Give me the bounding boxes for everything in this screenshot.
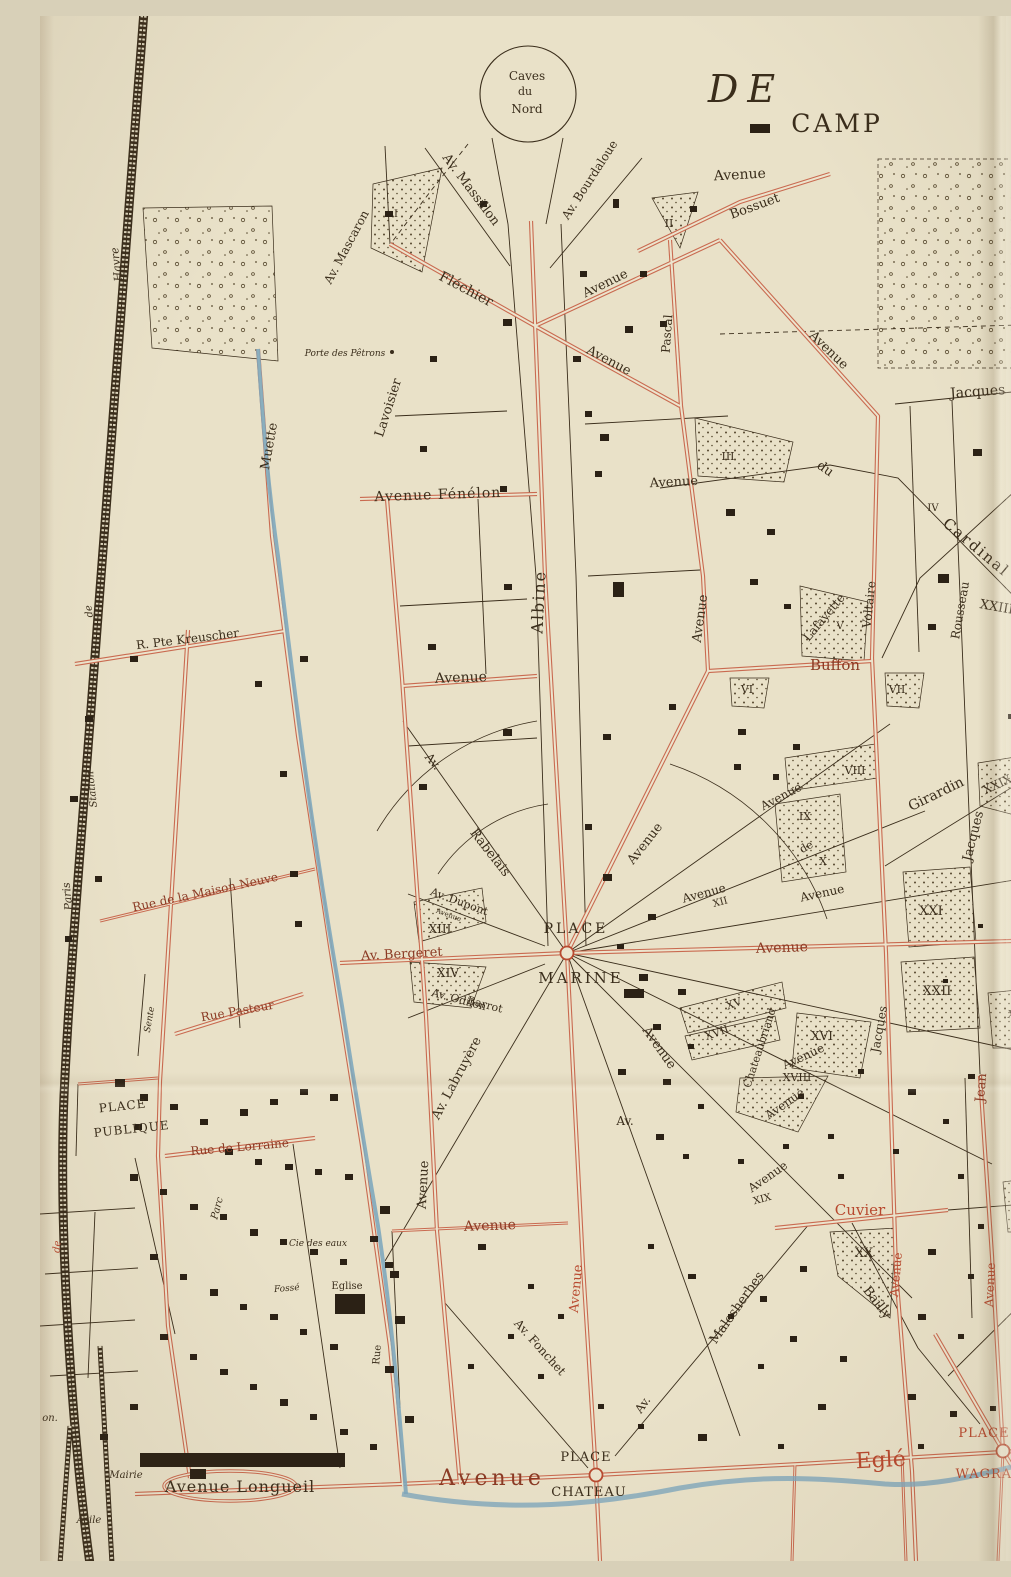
map-label: XVI bbox=[811, 1029, 833, 1043]
wooded-area bbox=[792, 1013, 871, 1078]
building bbox=[818, 1404, 826, 1410]
map-label: XVIII bbox=[783, 1071, 812, 1084]
building bbox=[478, 1244, 486, 1250]
map-label: DE bbox=[707, 67, 784, 111]
map-label: Avenue bbox=[438, 1466, 545, 1491]
building bbox=[420, 446, 427, 452]
building bbox=[918, 1314, 926, 1320]
building bbox=[838, 1174, 844, 1179]
building bbox=[698, 1434, 707, 1441]
building bbox=[648, 1244, 654, 1249]
building bbox=[170, 1104, 178, 1110]
building bbox=[783, 1144, 789, 1149]
building bbox=[738, 1159, 744, 1164]
map-label: Eglise bbox=[331, 1281, 362, 1292]
map-label: I bbox=[394, 209, 398, 220]
building bbox=[300, 1329, 307, 1335]
building bbox=[600, 434, 609, 441]
map-label: Mairie bbox=[108, 1470, 142, 1481]
building bbox=[370, 1444, 377, 1450]
building bbox=[598, 1404, 604, 1409]
building bbox=[508, 1334, 514, 1339]
map-label: Avenue bbox=[648, 474, 698, 492]
map-label: Cie des eaux bbox=[289, 1239, 347, 1249]
building bbox=[150, 1254, 158, 1260]
building bbox=[595, 471, 602, 477]
building bbox=[918, 1444, 924, 1449]
building bbox=[990, 1406, 996, 1411]
map-label: Rue bbox=[371, 1344, 384, 1365]
building bbox=[639, 974, 648, 981]
building bbox=[100, 1434, 108, 1440]
building bbox=[345, 1174, 353, 1180]
building bbox=[395, 1316, 405, 1324]
building bbox=[758, 1364, 764, 1369]
building bbox=[908, 1394, 916, 1400]
building bbox=[330, 1094, 338, 1101]
building bbox=[613, 582, 624, 597]
building bbox=[370, 1236, 378, 1242]
place-wagram bbox=[997, 1445, 1010, 1458]
building bbox=[760, 1296, 767, 1302]
building bbox=[385, 1366, 394, 1373]
building bbox=[688, 1044, 694, 1049]
building bbox=[943, 1119, 949, 1124]
building bbox=[858, 1069, 864, 1074]
map-label: Nord bbox=[511, 102, 542, 116]
map-label: Avenue Longueil bbox=[164, 1477, 315, 1496]
building bbox=[573, 356, 581, 362]
building bbox=[656, 1134, 664, 1140]
building bbox=[828, 1134, 834, 1139]
map-label: Porte des Pêtrons bbox=[304, 348, 386, 359]
building bbox=[950, 1411, 957, 1417]
building bbox=[130, 656, 138, 662]
map-label: PLACE bbox=[560, 1450, 611, 1465]
building bbox=[385, 1262, 393, 1268]
building bbox=[190, 1354, 197, 1360]
building bbox=[690, 206, 697, 212]
building bbox=[613, 199, 619, 208]
map-label: MARINE bbox=[538, 969, 624, 987]
building bbox=[800, 1266, 807, 1272]
map-label: de bbox=[83, 604, 95, 618]
building bbox=[790, 1336, 797, 1342]
building bbox=[978, 924, 983, 928]
map-label: III bbox=[721, 450, 734, 463]
building bbox=[938, 574, 949, 583]
building bbox=[220, 1369, 228, 1375]
building bbox=[504, 584, 512, 590]
building bbox=[928, 1249, 936, 1255]
building bbox=[419, 784, 427, 790]
building bbox=[280, 1399, 288, 1406]
map-label: V bbox=[835, 621, 844, 632]
building bbox=[928, 624, 936, 630]
map-label: du bbox=[518, 85, 532, 98]
building bbox=[300, 656, 308, 662]
building bbox=[750, 579, 758, 585]
building bbox=[603, 734, 611, 740]
building bbox=[617, 944, 624, 949]
building bbox=[85, 716, 93, 722]
building bbox=[430, 356, 437, 362]
building bbox=[270, 1314, 278, 1320]
map-label: XXI bbox=[919, 904, 943, 919]
building bbox=[558, 1314, 564, 1319]
map-label: CHATEAU bbox=[551, 1485, 626, 1500]
map-label: Albine bbox=[527, 569, 549, 635]
building bbox=[585, 411, 592, 417]
map-label: Caves bbox=[509, 69, 545, 83]
historic-map: CavesduNordDECAMPAvenueBossuetIIIAv. Mas… bbox=[40, 16, 1011, 1561]
building bbox=[793, 744, 800, 750]
building bbox=[893, 1149, 899, 1154]
building bbox=[340, 1429, 348, 1435]
building bbox=[290, 871, 298, 877]
building bbox=[140, 1453, 345, 1467]
map-label: Avenue bbox=[415, 1160, 433, 1210]
building bbox=[160, 1189, 167, 1195]
building bbox=[678, 989, 686, 995]
building bbox=[528, 1284, 534, 1289]
building bbox=[240, 1304, 247, 1310]
map-label: IX bbox=[799, 810, 811, 823]
map-label: Avenue bbox=[434, 669, 488, 687]
building bbox=[958, 1174, 964, 1179]
building bbox=[385, 211, 393, 217]
building bbox=[280, 771, 287, 777]
building bbox=[130, 1174, 138, 1181]
building bbox=[908, 1089, 916, 1095]
building bbox=[210, 1289, 218, 1296]
building bbox=[618, 1069, 626, 1075]
gate-marker bbox=[390, 350, 394, 354]
building bbox=[335, 1294, 365, 1314]
building bbox=[767, 529, 775, 535]
building bbox=[968, 1274, 974, 1279]
building bbox=[240, 1109, 248, 1116]
map-label: II bbox=[665, 217, 674, 230]
building bbox=[200, 1119, 208, 1125]
building bbox=[295, 921, 302, 927]
building bbox=[503, 729, 512, 736]
building bbox=[943, 979, 948, 983]
map-label: Avenue bbox=[463, 1217, 517, 1235]
wooded-area bbox=[775, 794, 846, 882]
building bbox=[95, 876, 102, 882]
building bbox=[310, 1414, 317, 1420]
building bbox=[773, 774, 779, 780]
map-label: de bbox=[51, 1240, 63, 1253]
map-label: XXII bbox=[923, 984, 952, 999]
building bbox=[698, 1104, 704, 1109]
building bbox=[750, 124, 770, 133]
building bbox=[585, 824, 592, 830]
map-label: PLACE bbox=[958, 1426, 1009, 1441]
building bbox=[603, 874, 612, 881]
building bbox=[726, 509, 735, 516]
map-label: Avenue bbox=[982, 1262, 998, 1308]
map-label: VI bbox=[740, 683, 753, 696]
building bbox=[315, 1169, 322, 1175]
building bbox=[669, 704, 676, 710]
building bbox=[285, 1164, 293, 1170]
map-label: X bbox=[819, 855, 827, 868]
building bbox=[250, 1384, 257, 1390]
building bbox=[978, 1224, 984, 1229]
building bbox=[663, 1079, 671, 1085]
building bbox=[255, 1159, 262, 1165]
building bbox=[428, 644, 436, 650]
map-label: Avenue bbox=[712, 166, 766, 185]
building bbox=[840, 1356, 847, 1362]
building bbox=[160, 1334, 168, 1340]
building bbox=[65, 936, 72, 942]
map-label: XIII bbox=[429, 922, 452, 936]
map-label: Cuvier bbox=[835, 1201, 886, 1219]
building bbox=[538, 1374, 544, 1379]
building bbox=[973, 449, 982, 456]
building bbox=[778, 1444, 784, 1449]
building bbox=[330, 1344, 338, 1350]
building bbox=[734, 764, 741, 770]
map-label: on. bbox=[42, 1413, 58, 1424]
building bbox=[115, 1079, 125, 1087]
map-label: Av. bbox=[615, 1114, 633, 1128]
building bbox=[180, 1274, 187, 1280]
building bbox=[688, 1274, 696, 1279]
map-label: WAGRAM bbox=[956, 1467, 1011, 1482]
map-label: XIV bbox=[437, 966, 459, 980]
building bbox=[130, 1404, 138, 1410]
map-label: IV bbox=[927, 503, 939, 514]
map-label: VIII bbox=[844, 764, 866, 777]
building bbox=[255, 681, 262, 687]
building bbox=[340, 1259, 347, 1265]
place-chateau bbox=[590, 1469, 603, 1482]
wooded-area bbox=[143, 206, 278, 361]
building bbox=[70, 796, 78, 802]
building bbox=[380, 1206, 390, 1214]
building bbox=[625, 326, 633, 333]
map-label: Pascal bbox=[659, 314, 676, 354]
map-label: CAMP bbox=[791, 109, 883, 138]
building bbox=[784, 604, 791, 609]
building bbox=[738, 729, 746, 735]
map-label: Buffon bbox=[810, 656, 860, 674]
map-label: Avenue bbox=[755, 939, 809, 957]
map-label: PLACE bbox=[544, 921, 609, 937]
map-label: Asile bbox=[76, 1515, 102, 1526]
building bbox=[503, 319, 512, 326]
place-marine bbox=[561, 947, 574, 960]
map-label: VII bbox=[888, 683, 906, 696]
building bbox=[300, 1089, 308, 1095]
map-label: Jean bbox=[973, 1072, 991, 1105]
building bbox=[280, 1239, 287, 1245]
building bbox=[648, 914, 656, 920]
building bbox=[190, 1204, 198, 1210]
building bbox=[405, 1416, 414, 1423]
map-canvas: CavesduNordDECAMPAvenueBossuetIIIAv. Mas… bbox=[40, 16, 1011, 1561]
building bbox=[624, 989, 644, 998]
building bbox=[640, 271, 647, 277]
map-label: XX bbox=[855, 1246, 874, 1261]
building bbox=[958, 1334, 964, 1339]
map-label: Eglé bbox=[855, 1447, 906, 1475]
building bbox=[638, 1424, 644, 1429]
building bbox=[250, 1229, 258, 1236]
building bbox=[310, 1249, 318, 1255]
wooded-area bbox=[878, 159, 1011, 368]
building bbox=[580, 271, 587, 277]
building bbox=[270, 1099, 278, 1105]
building bbox=[390, 1271, 399, 1278]
building bbox=[683, 1154, 689, 1159]
building bbox=[468, 1364, 474, 1369]
